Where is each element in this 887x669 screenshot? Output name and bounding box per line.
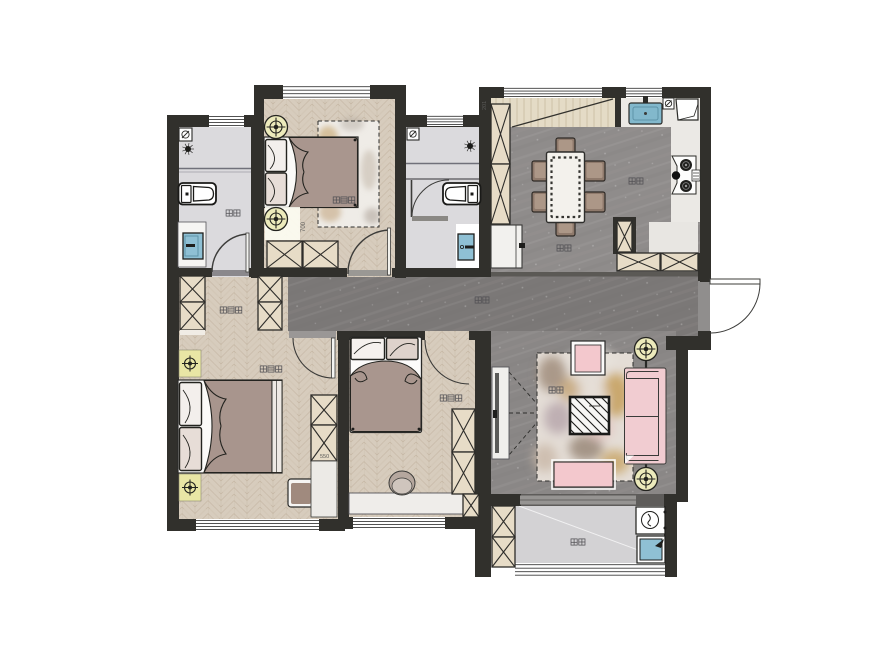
svg-text:550: 550 bbox=[320, 454, 329, 460]
svg-text:700: 700 bbox=[301, 221, 307, 232]
svg-text:201: 201 bbox=[482, 101, 488, 110]
